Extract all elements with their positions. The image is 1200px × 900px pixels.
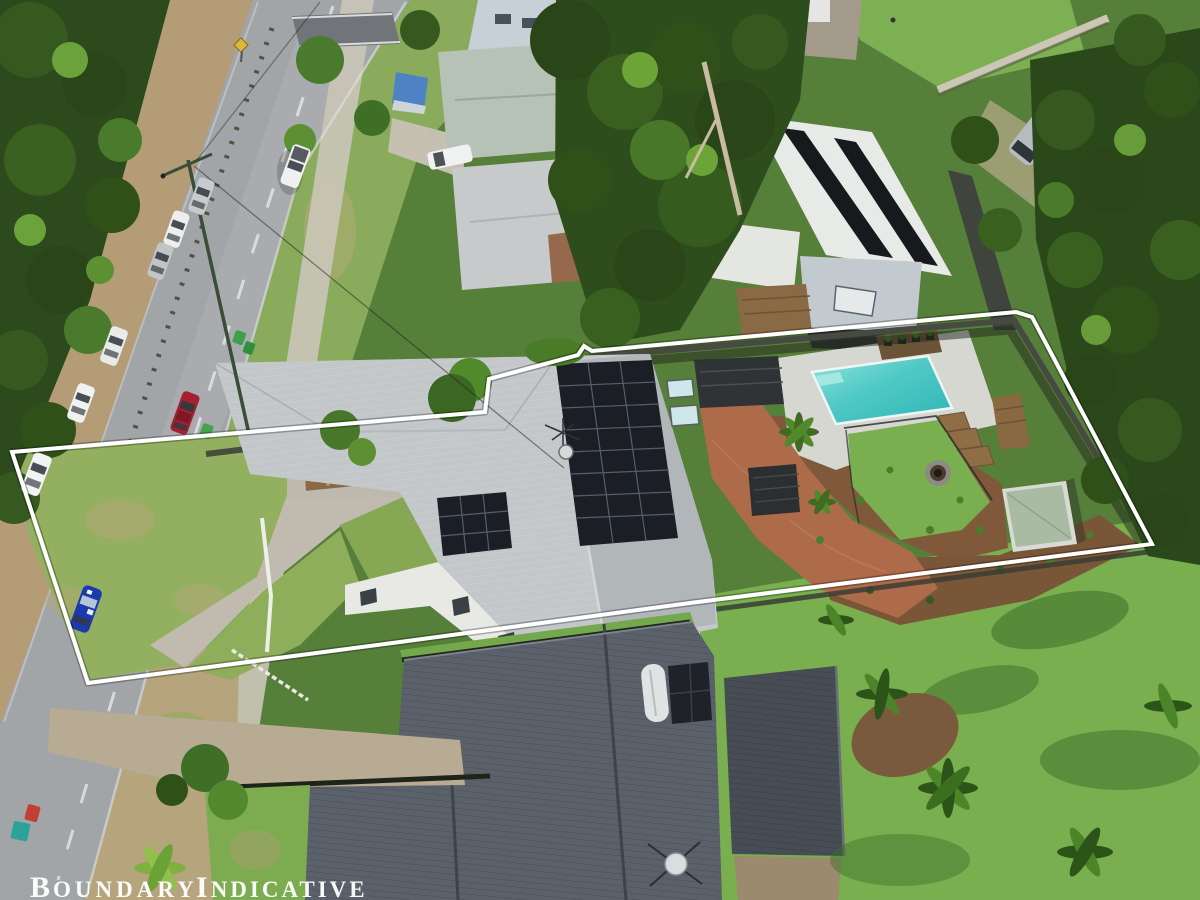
- carport: [724, 666, 844, 900]
- skylight: [667, 379, 694, 398]
- boat-blue-tarp: [392, 72, 428, 114]
- gazebo: [748, 464, 800, 516]
- boundary-label-part: I: [196, 871, 211, 900]
- solar-hot-water: [640, 662, 712, 724]
- gable-window: [834, 286, 876, 316]
- boundary-label-part: NDICATIVE: [211, 877, 368, 900]
- aerial-photo: BOUNDARY INDICATIVE: [0, 0, 1200, 900]
- small-solar-array: [437, 492, 512, 556]
- garden-shed: [1002, 478, 1086, 552]
- skylight: [670, 405, 699, 426]
- fire-pit: [925, 460, 951, 486]
- boundary-label-part: OUNDARY: [53, 877, 198, 900]
- boundary-label-part: B: [30, 871, 53, 900]
- carport-ground: [734, 856, 842, 900]
- pergola: [694, 356, 784, 408]
- satellite-dish-small: [559, 445, 573, 459]
- person: [891, 18, 896, 23]
